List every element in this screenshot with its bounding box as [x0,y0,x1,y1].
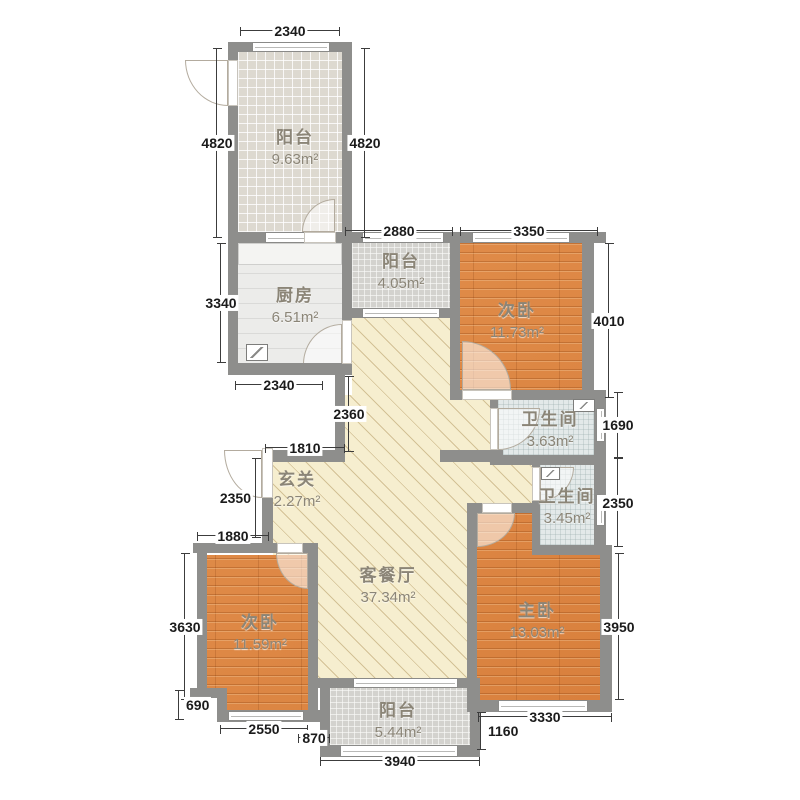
room-area: 9.63m² [245,151,345,169]
room-label-master-bedroom: 主卧 13.03m² [487,601,587,642]
dimension-entry-height: 2350 [255,458,256,538]
door-opening [482,503,512,513]
door-opening [228,60,238,106]
dimension-value: 4820 [199,135,234,151]
wall [440,450,503,462]
dimension-hall-width: 1810 [265,447,345,448]
dimension-value: 3940 [382,753,417,769]
window [228,711,304,721]
dimension-value: 3950 [601,618,636,634]
dimension-bedroom-l-top: 1880 [197,535,269,536]
dimension-bedroom-l-height: 3630 [184,553,185,700]
door-opening [462,390,512,400]
dimension-value: 1880 [215,528,250,544]
dimension-value: 2340 [272,23,307,39]
dimension-notch-height: 690 [178,690,179,720]
floor-plan: 阳台 9.63m² 厨房 6.51m² 阳台 4.05m² 次卧 11.73m²… [0,0,800,800]
room-area: 2.27m² [247,493,347,511]
room-area: 11.59m² [210,636,310,654]
dimension-balcony-b-width: 3940 [320,760,480,761]
window [362,308,440,318]
dimension-value: 870 [300,730,327,746]
dimension-value: 1810 [287,440,322,456]
room-area: 11.73m² [467,324,567,342]
room-label-balcony-top: 阳台 4.05m² [351,252,451,293]
dimension-kitchen-height: 3340 [220,243,221,363]
window [252,42,330,52]
dimension-value: 3330 [527,709,562,725]
dimension-top-balcony-width: 2340 [240,30,340,31]
dimension-value: 3630 [167,618,202,634]
dimension-bedroom-tr-width: 3350 [460,230,598,231]
dimension-value: 2350 [218,490,253,506]
room-name: 次卧 [467,301,567,321]
room-label-balcony-bottom: 阳台 5.44m² [348,701,448,742]
room-bedroom-left-lower [227,690,308,712]
dimension-value: 1690 [600,417,635,433]
room-name: 客餐厅 [338,566,438,586]
wall [228,363,352,375]
room-name: 阳台 [245,128,345,148]
dimension-mid-balcony-width: 2880 [345,230,453,231]
dimension-master-width: 3330 [478,716,612,717]
dimension-bath2-height: 2350 [617,458,618,547]
kitchen-sink-icon [246,344,268,361]
wall [490,455,606,465]
room-area: 3.63m² [500,433,600,451]
room-name: 厨房 [245,286,345,306]
washing-machine-icon [541,467,560,480]
dimension-master-height: 3950 [618,553,619,700]
dimension-value: 2880 [381,223,416,239]
window [265,232,307,243]
room-label-bedroom-left: 次卧 11.59m² [210,613,310,654]
window [353,678,458,688]
room-name: 阳台 [348,701,448,721]
dimension-bath1-height: 1690 [617,392,618,458]
dimension-balcony-right: 4820 [364,48,365,238]
door-opening [304,232,336,243]
dimension-gap-small: 870 [298,737,330,738]
dimension-value: 3350 [511,223,546,239]
dimension-value: 690 [184,697,211,713]
dimension-value: 4010 [591,312,626,328]
room-label-balcony-top-left: 阳台 9.63m² [245,128,345,169]
dimension-value: 2350 [600,494,635,510]
room-name: 阳台 [351,252,451,272]
room-area: 4.05m² [351,275,451,293]
dimension-gap-right: 1160 [480,712,481,750]
room-name: 主卧 [487,601,587,621]
dimension-value: 2550 [246,721,281,737]
dimension-balcony-left: 4820 [216,48,217,238]
room-name: 卫生间 [500,410,600,430]
room-area: 37.34m² [338,589,438,607]
dimension-value: 2340 [261,377,296,393]
wall [450,243,460,400]
dimension-value: 1160 [486,723,520,739]
dimension-value: 2360 [331,406,366,422]
dimension-value: 3340 [203,295,238,311]
room-label-kitchen: 厨房 6.51m² [245,286,345,327]
room-area: 13.03m² [487,624,587,642]
dimension-bedroom-l-width: 2550 [220,728,308,729]
room-name: 次卧 [210,613,310,633]
kitchen-counter [238,243,342,265]
room-name: 玄关 [247,470,347,490]
room-area: 6.51m² [245,309,345,327]
wall [217,688,227,722]
room-label-bathroom-1: 卫生间 3.63m² [500,410,600,451]
dimension-bedroom-tr-height: 4010 [608,243,609,398]
door-opening [490,408,498,450]
room-area: 5.44m² [348,724,448,742]
room-label-bedroom-top-right: 次卧 11.73m² [467,301,567,342]
wall [197,543,207,690]
room-area: 3.45m² [517,510,617,528]
room-label-entry: 玄关 2.27m² [247,470,347,511]
room-label-living-dining: 客餐厅 37.34m² [338,566,438,607]
dimension-hall-height: 2360 [348,376,349,452]
door-arc [185,60,228,106]
dimension-kitchen-width: 2340 [235,384,323,385]
dimension-value: 4820 [347,135,382,151]
door-opening [277,543,303,553]
